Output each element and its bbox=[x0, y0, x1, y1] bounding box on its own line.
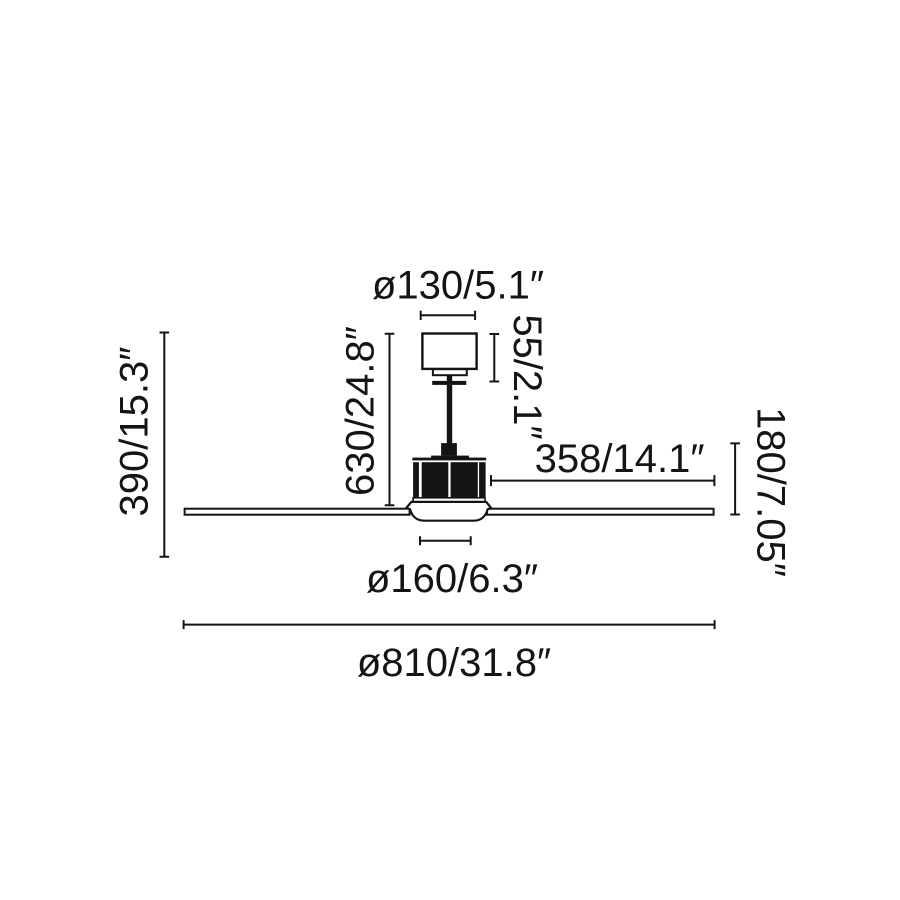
svg-text:390/15.3″: 390/15.3″ bbox=[113, 347, 157, 517]
svg-text:55/2.1″: 55/2.1″ bbox=[505, 314, 549, 439]
svg-text:ø810/31.8″: ø810/31.8″ bbox=[357, 641, 551, 685]
svg-text:630/24.8″: 630/24.8″ bbox=[339, 326, 383, 496]
svg-text:ø160/6.3″: ø160/6.3″ bbox=[366, 557, 538, 601]
svg-text:ø130/5.1″: ø130/5.1″ bbox=[372, 264, 544, 308]
svg-text:358/14.1″: 358/14.1″ bbox=[535, 437, 705, 481]
svg-text:180/7.05″: 180/7.05″ bbox=[749, 407, 793, 577]
